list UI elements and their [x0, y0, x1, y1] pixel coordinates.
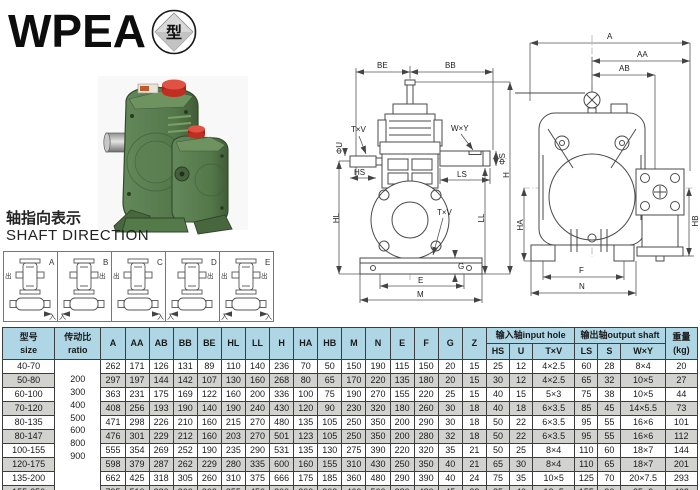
col-header-dim: AA	[125, 328, 149, 360]
input-shaft-cell: 8×4	[533, 458, 575, 472]
output-shaft-cell: 55	[598, 430, 621, 444]
dim-cell: 135	[294, 444, 318, 458]
dim-cell: 275	[342, 444, 366, 458]
dim-cell: 122	[197, 388, 221, 402]
dim-cell: 302	[197, 486, 221, 490]
size-cell: 50-80	[3, 374, 55, 388]
dim-cell: 144	[149, 374, 173, 388]
dim-cell: 598	[101, 458, 125, 472]
dim-cell: 212	[173, 430, 197, 444]
dim-cell: 190	[197, 444, 221, 458]
dim-cell: 89	[197, 360, 221, 374]
ratio-value: 500	[55, 412, 100, 425]
dim-cell: 336	[270, 388, 294, 402]
dim-cell: 380	[149, 486, 173, 490]
shaft-direction-strip: A 出 入 B	[3, 251, 274, 322]
dim-cell: 24	[462, 472, 486, 486]
weight-cell: 462	[665, 486, 697, 490]
photo-secondary-unit	[172, 125, 228, 222]
label-ha: HA	[516, 219, 525, 231]
ratio-value: 600	[55, 424, 100, 437]
input-shaft-cell: 12	[510, 360, 533, 374]
dim-cell: 160	[221, 388, 245, 402]
col-header-ratio-en: ratio	[55, 344, 100, 357]
output-shaft-cell: 25×9	[621, 486, 665, 490]
size-cell: 155-250	[3, 486, 55, 490]
dim-cell: 130	[221, 374, 245, 388]
ratio-value: 400	[55, 399, 100, 412]
dim-cell: 531	[270, 444, 294, 458]
output-shaft-cell: 95	[575, 416, 598, 430]
dim-cell: 268	[270, 374, 294, 388]
dim-cell: 190	[173, 402, 197, 416]
col-header-dim: HB	[318, 328, 342, 360]
dim-cell: 180	[390, 402, 414, 416]
dim-cell: 270	[245, 430, 269, 444]
output-shaft-cell: 38	[598, 388, 621, 402]
table-row: 40-7020030040050060080090026217112613189…	[3, 360, 698, 374]
label-e: E	[418, 276, 423, 285]
input-shaft-cell: 50	[486, 444, 509, 458]
table-row: 80-1354712982262101602152704801351052503…	[3, 416, 698, 430]
shaft-schematic	[10, 259, 50, 310]
input-shaft-cell: 22	[510, 416, 533, 430]
weight-cell: 101	[665, 416, 697, 430]
shaft-direction-heading: 轴指向表示 SHAFT DIRECTION	[6, 210, 149, 244]
output-shaft-cell: 20×7.5	[621, 472, 665, 486]
output-shaft-cell: 60	[575, 360, 598, 374]
dimension-spec-table: 型号size传动比ratioAAAABBBBEHLLLHHAHBMNEFGZ输入…	[2, 327, 698, 490]
input-shaft-cell: 18	[510, 402, 533, 416]
ratio-cell: 200300400500600800900	[55, 360, 101, 490]
dim-cell: 190	[342, 388, 366, 402]
dim-cell: 175	[149, 388, 173, 402]
input-shaft-cell: 30	[486, 374, 509, 388]
dim-cell: 155	[390, 388, 414, 402]
size-cell: 60-100	[3, 388, 55, 402]
output-shaft-cell: 18×7	[621, 458, 665, 472]
label-hb: HB	[691, 215, 700, 226]
dim-cell: 210	[173, 416, 197, 430]
weight-cell: 201	[665, 458, 697, 472]
size-cell: 135-200	[3, 472, 55, 486]
output-shaft-cell: 28	[598, 360, 621, 374]
dim-cell: 126	[149, 360, 173, 374]
variant-label: C	[157, 258, 163, 267]
dim-cell: 270	[366, 388, 390, 402]
dim-cell: 90	[318, 402, 342, 416]
label-n: N	[579, 282, 585, 291]
output-shaft-cell: 85	[575, 402, 598, 416]
label-txv2: T×V	[437, 208, 453, 217]
label-phiu: ΦU	[335, 142, 344, 154]
dim-cell: 379	[125, 458, 149, 472]
col-header-dim: Z	[462, 328, 486, 360]
col-header-weight: 重量(kg)	[665, 328, 697, 360]
col-header-dim: H	[270, 328, 294, 360]
dim-cell: 15	[462, 374, 486, 388]
dim-cell: 270	[245, 416, 269, 430]
svg-text:出: 出	[261, 271, 268, 280]
dim-cell: 555	[101, 444, 125, 458]
dim-cell: 28	[462, 486, 486, 490]
label-m: M	[417, 290, 424, 299]
dim-cell: 390	[366, 444, 390, 458]
input-shaft-cell: 40	[486, 402, 509, 416]
dim-cell: 380	[390, 486, 414, 490]
col-group-input: 输入轴input hole	[486, 328, 574, 344]
table-row: 100-155555354269252190235290531135130275…	[3, 444, 698, 458]
input-shaft-cell: 4×2.5	[533, 360, 575, 374]
dim-cell: 354	[125, 444, 149, 458]
dim-cell: 160	[294, 458, 318, 472]
output-shaft-cell: 8×4	[621, 360, 665, 374]
dim-cell: 75	[318, 388, 342, 402]
output-shaft-cell: 60	[598, 444, 621, 458]
dim-cell: 460	[342, 486, 366, 490]
output-shaft-cell: 155	[575, 486, 598, 490]
input-shaft-cell: 15	[510, 388, 533, 402]
ratio-value: 200	[55, 373, 100, 386]
input-shaft-cell: 75	[486, 472, 509, 486]
input-shaft-cell: 40	[486, 388, 509, 402]
input-shaft-cell: 50	[486, 430, 509, 444]
col-group-output: 输出轴output shaft	[575, 328, 665, 344]
shaft-direction-title-en: SHAFT DIRECTION	[6, 227, 149, 244]
dim-cell: 390	[414, 472, 438, 486]
shaft-schematic	[226, 259, 266, 310]
label-ab: AB	[619, 64, 630, 73]
input-shaft-cell: 12×5	[533, 486, 575, 490]
input-shaft-cell: 25	[510, 444, 533, 458]
label-wxy: W×Y	[451, 124, 469, 133]
label-aa: AA	[637, 50, 648, 59]
side-view-drawing: A AA AB	[515, 5, 700, 320]
col-header-dim: M	[342, 328, 366, 360]
dim-cell: 200	[390, 416, 414, 430]
label-hl: HL	[333, 212, 341, 223]
dim-cell: 298	[125, 416, 149, 430]
dim-cell: 140	[197, 402, 221, 416]
dim-cell: 185	[318, 472, 342, 486]
input-shaft-cell: 6×3.5	[533, 402, 575, 416]
logo: WPEA 型	[8, 4, 198, 58]
front-housing	[350, 80, 490, 274]
dim-cell: 203	[318, 486, 342, 490]
dim-cell: 21	[462, 458, 486, 472]
dim-cell: 220	[366, 374, 390, 388]
dim-cell: 220	[414, 388, 438, 402]
dim-cell: 50	[318, 360, 342, 374]
table-row: 135-200662425318305260310375666175185360…	[3, 472, 698, 486]
dim-cell: 200	[245, 388, 269, 402]
dim-cell: 107	[197, 374, 221, 388]
input-shaft-cell: 22	[510, 430, 533, 444]
col-header-dim: F	[414, 328, 438, 360]
variant-label: E	[265, 258, 270, 267]
dim-cell: 21	[462, 444, 486, 458]
label-be: BE	[377, 61, 388, 70]
dim-cell: 197	[125, 374, 149, 388]
table-row: 80-1474763012292121602032705011231052503…	[3, 430, 698, 444]
col-header-output: LS	[575, 344, 598, 360]
dim-cell: 795	[101, 486, 125, 490]
output-shaft-cell: 18×7	[621, 444, 665, 458]
table-row: 70-1204082561931901401902404301209023032…	[3, 402, 698, 416]
dim-cell: 175	[294, 472, 318, 486]
dim-cell: 256	[125, 402, 149, 416]
shaft-direction-box: C 出 入	[112, 251, 166, 322]
dim-cell: 229	[149, 430, 173, 444]
shaft-direction-box: D 出 入	[166, 251, 220, 322]
dim-cell: 250	[342, 416, 366, 430]
dim-cell: 231	[125, 388, 149, 402]
dim-cell: 25	[438, 388, 462, 402]
dim-cell: 130	[318, 444, 342, 458]
col-header-dim: HL	[221, 328, 245, 360]
input-shaft-cell: 50	[486, 416, 509, 430]
dim-cell: 297	[101, 374, 125, 388]
dim-cell: 287	[149, 458, 173, 472]
col-header-dim: A	[101, 328, 125, 360]
output-shaft-cell: 65	[575, 374, 598, 388]
output-shaft-cell: 16×6	[621, 416, 665, 430]
dim-cell: 662	[101, 472, 125, 486]
svg-text:出: 出	[207, 271, 214, 280]
dim-cell: 160	[197, 416, 221, 430]
variant-label: B	[103, 258, 108, 267]
shaft-schematic	[64, 259, 104, 310]
dim-cell: 105	[318, 430, 342, 444]
dim-cell: 280	[221, 458, 245, 472]
dim-cell: 476	[101, 430, 125, 444]
dim-cell: 480	[414, 486, 438, 490]
dim-cell: 203	[221, 430, 245, 444]
dim-cell: 120	[294, 402, 318, 416]
col-header-dim: BB	[173, 328, 197, 360]
dim-cell: 15	[462, 360, 486, 374]
weight-cell: 144	[665, 444, 697, 458]
dim-cell: 226	[149, 416, 173, 430]
dim-cell: 160	[245, 374, 269, 388]
svg-text:出: 出	[99, 271, 106, 280]
dim-cell: 150	[414, 360, 438, 374]
dim-cell: 236	[270, 360, 294, 374]
dim-cell: 140	[245, 360, 269, 374]
dim-cell: 260	[197, 472, 221, 486]
dim-cell: 105	[318, 416, 342, 430]
dim-cell: 200	[294, 486, 318, 490]
dim-cell: 269	[149, 444, 173, 458]
col-header-size-zh: 型号	[3, 331, 54, 344]
dim-cell: 220	[390, 444, 414, 458]
output-shaft-cell: 95	[575, 430, 598, 444]
input-shaft-cell: 35	[510, 472, 533, 486]
input-shaft-cell: 12	[510, 374, 533, 388]
dim-cell: 305	[173, 472, 197, 486]
ratio-value: 900	[55, 450, 100, 463]
dim-cell: 40	[438, 472, 462, 486]
dim-cell: 480	[366, 472, 390, 486]
dim-cell: 30	[438, 402, 462, 416]
spec-table-head: 型号size传动比ratioAAAABBBBEHLLLHHAHBMNEFGZ输入…	[3, 328, 698, 360]
dim-cell: 335	[245, 458, 269, 472]
dim-cell: 350	[366, 430, 390, 444]
table-row: 120-175598379287262229280335600160155310…	[3, 458, 698, 472]
output-shaft-cell: 10×5	[621, 374, 665, 388]
size-cell: 120-175	[3, 458, 55, 472]
photo-oil-cap-main	[162, 80, 186, 98]
dim-cell: 290	[245, 444, 269, 458]
input-shaft-cell: 8×4	[533, 444, 575, 458]
dim-cell: 250	[390, 458, 414, 472]
side-housing	[515, 92, 684, 261]
label-hs: HS	[354, 168, 365, 177]
dim-cell: 375	[245, 472, 269, 486]
label-txv: T×V	[351, 125, 367, 134]
output-shaft-cell: 110	[575, 444, 598, 458]
output-shaft-cell: 55	[598, 416, 621, 430]
variant-label: D	[211, 258, 217, 267]
col-header-input: T×V	[533, 344, 575, 360]
dim-cell: 666	[270, 472, 294, 486]
dim-cell: 235	[221, 444, 245, 458]
weight-cell: 20	[665, 360, 697, 374]
dim-cell: 35	[438, 444, 462, 458]
dim-cell: 471	[101, 416, 125, 430]
dim-cell: 150	[342, 360, 366, 374]
shaft-direction-box: B 出 入	[58, 251, 112, 322]
dim-cell: 310	[342, 458, 366, 472]
dim-cell: 350	[414, 458, 438, 472]
dim-cell: 430	[366, 458, 390, 472]
col-header-output: S	[598, 344, 621, 360]
output-shaft-cell: 65	[598, 458, 621, 472]
svg-text:出: 出	[221, 271, 228, 280]
output-shaft-cell: 10×5	[621, 388, 665, 402]
dim-cell: 200	[390, 430, 414, 444]
input-shaft-cell: 6×3.5	[533, 430, 575, 444]
dim-cell: 18	[462, 416, 486, 430]
output-shaft-cell: 75	[575, 388, 598, 402]
dim-cell: 480	[270, 416, 294, 430]
col-header-ratio-zh: 传动比	[55, 331, 100, 344]
dim-cell: 135	[294, 416, 318, 430]
dim-cell: 408	[101, 402, 125, 416]
dim-cell: 229	[197, 458, 221, 472]
weight-cell: 44	[665, 388, 697, 402]
dim-cell: 510	[125, 486, 149, 490]
size-cell: 80-135	[3, 416, 55, 430]
dim-cell: 355	[221, 486, 245, 490]
weight-cell: 27	[665, 374, 697, 388]
input-shaft-cell: 5×3	[533, 388, 575, 402]
dim-cell: 193	[149, 402, 173, 416]
table-row: 60-1003632311751691221602003361007519027…	[3, 388, 698, 402]
dim-cell: 290	[390, 472, 414, 486]
label-bb: BB	[445, 61, 456, 70]
dim-cell: 262	[101, 360, 125, 374]
dim-cell: 600	[270, 458, 294, 472]
label-a: A	[607, 32, 613, 41]
dim-cell: 310	[221, 472, 245, 486]
weight-cell: 73	[665, 402, 697, 416]
input-shaft-cell: 30	[510, 458, 533, 472]
logo-title: WPEA	[8, 4, 146, 58]
output-shaft-cell: 110	[575, 458, 598, 472]
dim-cell: 180	[414, 374, 438, 388]
dim-cell: 320	[366, 402, 390, 416]
label-ls: LS	[457, 170, 467, 179]
label-ll: LL	[477, 213, 486, 222]
svg-text:出: 出	[113, 271, 120, 280]
output-shaft-cell: 14×5.5	[621, 402, 665, 416]
col-header-dim: AB	[149, 328, 173, 360]
dim-cell: 262	[173, 458, 197, 472]
dim-cell: 123	[294, 430, 318, 444]
size-cell: 70-120	[3, 402, 55, 416]
front-view-drawing: BE BB	[333, 10, 518, 315]
table-row: 155-250795510380360302355450800200203460…	[3, 486, 698, 490]
dim-cell: 169	[173, 388, 197, 402]
dim-cell: 301	[125, 430, 149, 444]
dim-cell: 230	[342, 402, 366, 416]
shaft-direction-title-zh: 轴指向表示	[6, 210, 149, 227]
dim-cell: 320	[414, 444, 438, 458]
size-cell: 40-70	[3, 360, 55, 374]
input-shaft-cell: 4×2.5	[533, 374, 575, 388]
dim-cell: 560	[366, 486, 390, 490]
output-shaft-cell: 16×6	[621, 430, 665, 444]
dim-cell: 30	[438, 416, 462, 430]
dim-cell: 360	[342, 472, 366, 486]
dim-cell: 142	[173, 374, 197, 388]
dim-cell: 450	[245, 486, 269, 490]
ratio-value: 800	[55, 437, 100, 450]
dim-cell: 18	[462, 402, 486, 416]
dim-cell: 250	[342, 430, 366, 444]
output-shaft-cell: 90	[598, 486, 621, 490]
input-shaft-cell: 25	[486, 360, 509, 374]
dim-cell: 360	[173, 486, 197, 490]
ratio-value: 300	[55, 386, 100, 399]
table-row: 50-8029719714414210713016026880651702201…	[3, 374, 698, 388]
dim-cell: 40	[438, 458, 462, 472]
dim-cell: 190	[221, 402, 245, 416]
dim-cell: 363	[101, 388, 125, 402]
svg-text:出: 出	[5, 271, 12, 280]
dim-cell: 240	[245, 402, 269, 416]
catalog-page: WPEA 型	[0, 0, 700, 490]
dim-cell: 131	[173, 360, 197, 374]
col-header-size-en: size	[3, 344, 54, 357]
dim-cell: 252	[173, 444, 197, 458]
dim-cell: 135	[390, 374, 414, 388]
weight-cell: 293	[665, 472, 697, 486]
col-header-weight-en: (kg)	[666, 344, 697, 357]
shaft-schematic	[172, 259, 212, 310]
dim-cell: 170	[342, 374, 366, 388]
col-header-output: W×Y	[621, 344, 665, 360]
dim-cell: 171	[125, 360, 149, 374]
dim-cell: 65	[318, 374, 342, 388]
dim-cell: 160	[197, 430, 221, 444]
variant-label: A	[49, 258, 55, 267]
input-shaft-cell: 40	[510, 486, 533, 490]
dim-cell: 110	[221, 360, 245, 374]
dim-cell: 290	[414, 416, 438, 430]
input-shaft-cell: 6×3.5	[533, 416, 575, 430]
